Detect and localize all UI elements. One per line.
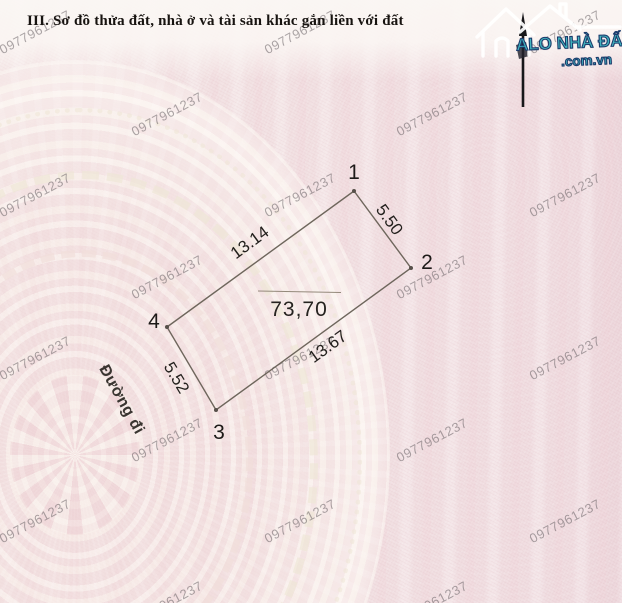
vertex-label-1: 1 <box>348 161 360 185</box>
parcel-area-value: 73,70 <box>270 298 328 322</box>
vertex-label-2: 2 <box>421 251 433 275</box>
logo-domain-text: .com.vn <box>561 52 613 69</box>
section-title: III. Sơ đồ thửa đất, nhà ở và tài sản kh… <box>27 13 404 30</box>
alo-nha-dat-logo: ALO NHÀ ĐẤT .com.vn <box>470 0 622 84</box>
vertex-label-4: 4 <box>148 310 160 334</box>
vertex-label-3: 3 <box>213 421 225 445</box>
land-certificate-photo: 0977961237097796123709779612370977961237… <box>0 0 622 603</box>
